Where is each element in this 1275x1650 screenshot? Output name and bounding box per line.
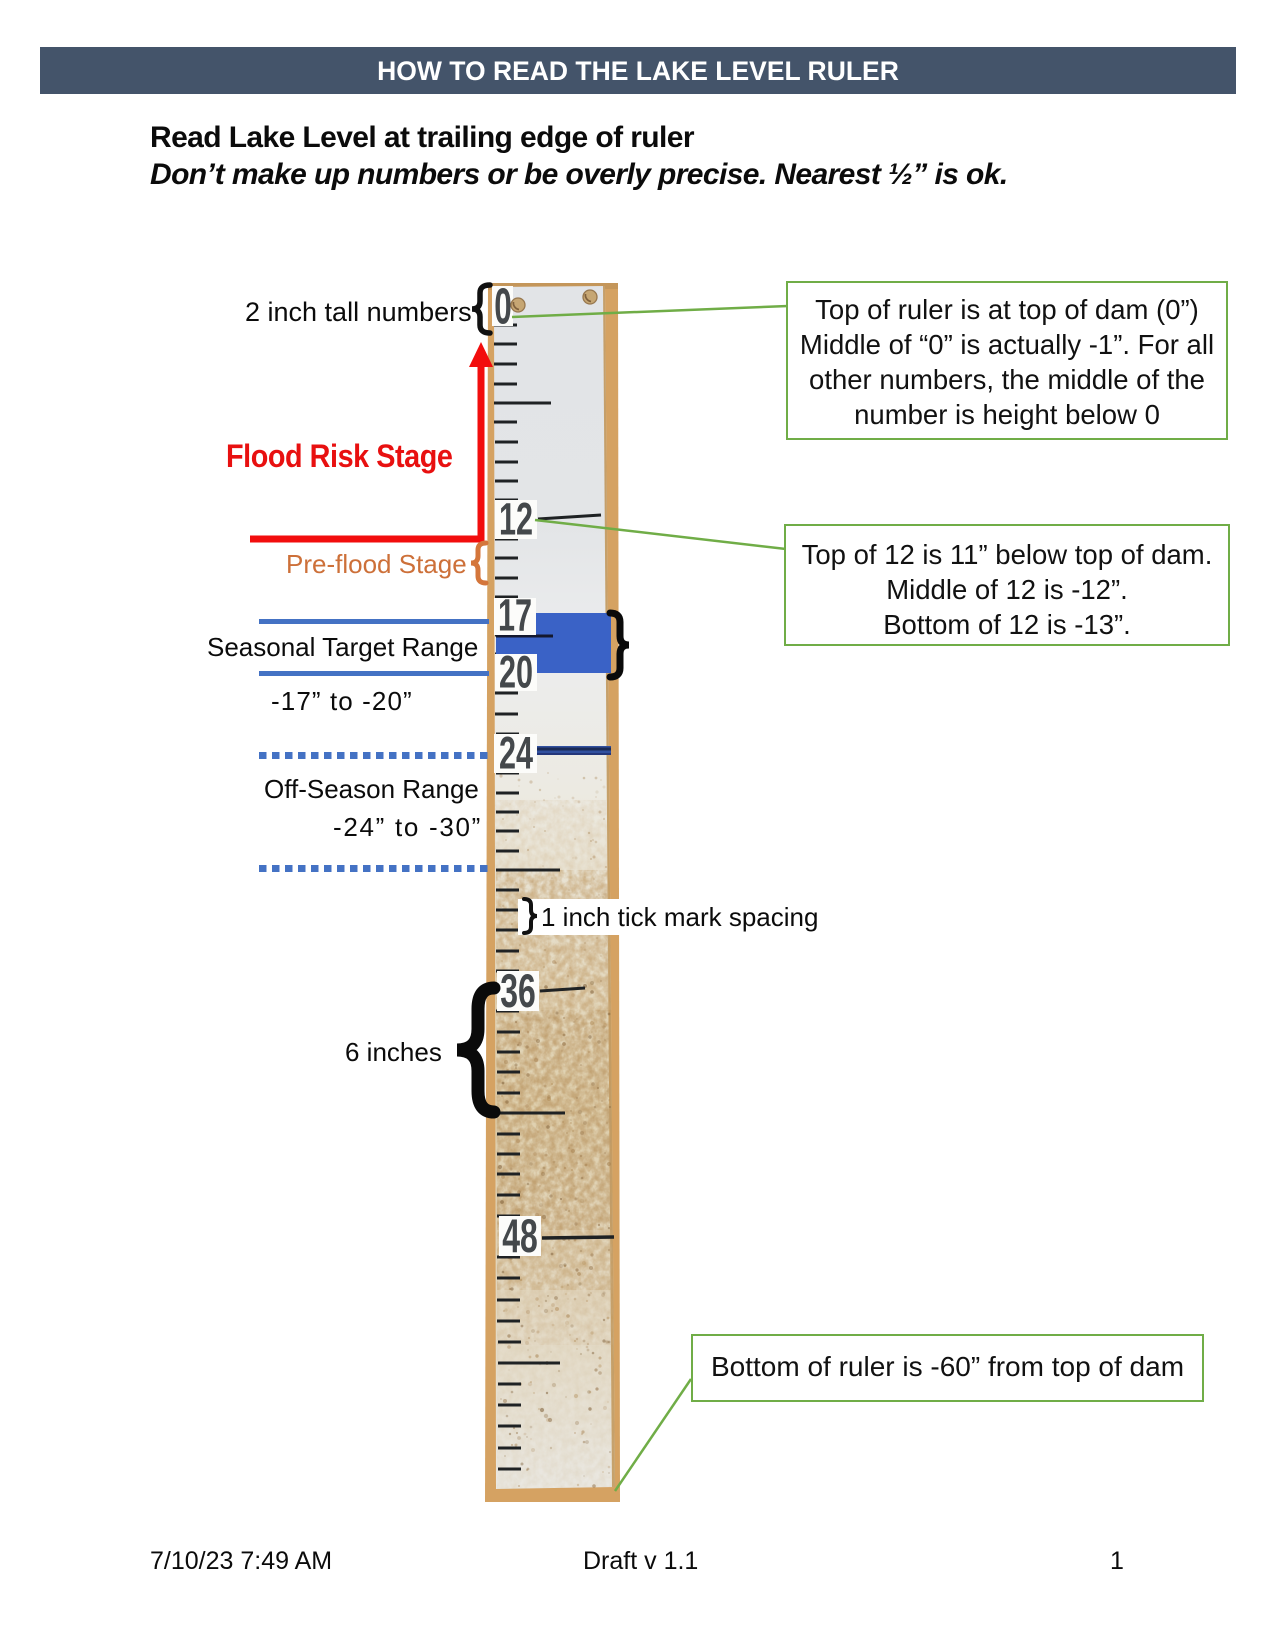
svg-text:48: 48 (502, 1210, 538, 1263)
svg-text:17: 17 (498, 591, 532, 641)
svg-text:36: 36 (500, 965, 536, 1018)
svg-text:24: 24 (499, 729, 534, 779)
svg-text:0: 0 (494, 278, 512, 334)
svg-text:12: 12 (499, 495, 533, 545)
svg-text:20: 20 (499, 648, 533, 698)
